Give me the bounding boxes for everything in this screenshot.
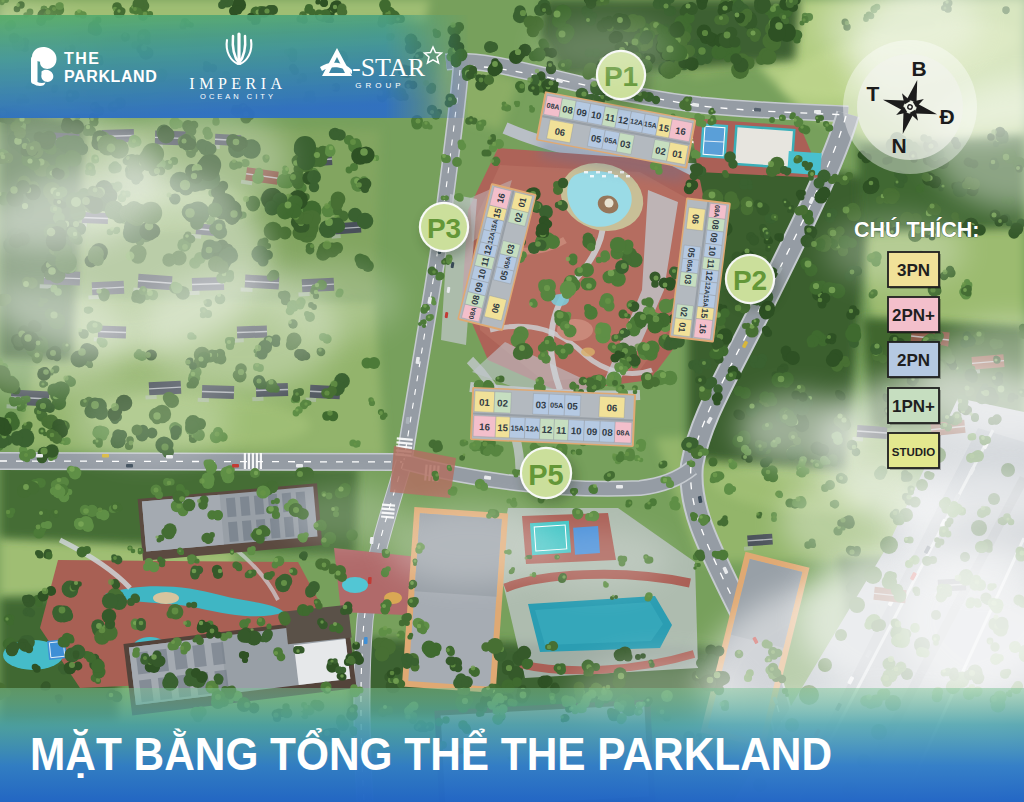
svg-text:08: 08 [561, 103, 573, 116]
svg-text:03: 03 [619, 138, 631, 151]
svg-text:10: 10 [590, 109, 602, 122]
svg-text:15: 15 [699, 308, 710, 319]
svg-text:08: 08 [710, 219, 721, 230]
svg-text:OCEAN CITY: OCEAN CITY [200, 92, 276, 101]
svg-text:05A: 05A [550, 401, 564, 411]
svg-text:09: 09 [708, 232, 719, 243]
svg-text:05: 05 [686, 247, 697, 258]
svg-text:08: 08 [602, 426, 614, 437]
svg-text:IMPERIA: IMPERIA [189, 75, 286, 92]
svg-text:06: 06 [690, 213, 701, 224]
svg-text:12: 12 [617, 114, 629, 127]
svg-text:15: 15 [497, 422, 509, 433]
svg-text:12: 12 [541, 424, 552, 435]
svg-text:-STAR: -STAR [352, 53, 426, 82]
svg-text:P2: P2 [733, 265, 767, 296]
svg-text:15A: 15A [510, 423, 524, 433]
svg-text:12A: 12A [525, 424, 539, 434]
svg-text:B: B [911, 57, 926, 80]
svg-text:09: 09 [586, 426, 597, 437]
svg-text:06: 06 [554, 125, 566, 138]
svg-text:Đ: Đ [939, 105, 954, 128]
svg-text:11: 11 [604, 111, 616, 124]
svg-text:P3: P3 [427, 213, 461, 244]
svg-text:1PN+: 1PN+ [892, 397, 935, 416]
svg-text:11: 11 [556, 424, 567, 435]
svg-text:N: N [891, 134, 906, 157]
svg-text:02: 02 [654, 144, 666, 157]
svg-text:02: 02 [497, 397, 508, 408]
svg-text:THE: THE [64, 50, 101, 67]
svg-text:2PN+: 2PN+ [892, 306, 935, 325]
svg-text:10: 10 [707, 246, 718, 257]
svg-text:STUDIO: STUDIO [892, 446, 936, 458]
svg-text:01: 01 [677, 322, 688, 333]
svg-text:12: 12 [704, 270, 715, 281]
svg-text:PARKLAND: PARKLAND [64, 68, 157, 85]
svg-text:01: 01 [671, 148, 683, 161]
svg-text:MẶT BẰNG TỔNG THỂ THE PARKLAND: MẶT BẰNG TỔNG THỂ THE PARKLAND [30, 727, 832, 780]
svg-text:16: 16 [697, 323, 708, 334]
svg-text:15: 15 [658, 121, 670, 134]
svg-text:01: 01 [479, 396, 491, 407]
svg-text:16: 16 [479, 421, 490, 432]
svg-text:3PN: 3PN [897, 261, 930, 280]
svg-text:16: 16 [674, 125, 686, 138]
svg-text:11: 11 [705, 259, 716, 270]
svg-text:05: 05 [590, 132, 602, 145]
svg-text:2PN: 2PN [897, 351, 930, 370]
svg-text:02: 02 [678, 306, 689, 317]
svg-text:GROUP: GROUP [355, 81, 404, 90]
svg-text:09: 09 [576, 106, 588, 119]
svg-text:03: 03 [682, 274, 693, 285]
svg-text:P5: P5 [528, 459, 563, 491]
svg-text:08A: 08A [616, 428, 630, 438]
svg-text:T: T [867, 82, 880, 105]
svg-text:03: 03 [535, 399, 546, 410]
svg-text:10: 10 [571, 425, 582, 436]
svg-text:05: 05 [567, 400, 579, 411]
svg-text:CHÚ THÍCH:: CHÚ THÍCH: [854, 217, 979, 242]
svg-text:06: 06 [606, 402, 617, 413]
